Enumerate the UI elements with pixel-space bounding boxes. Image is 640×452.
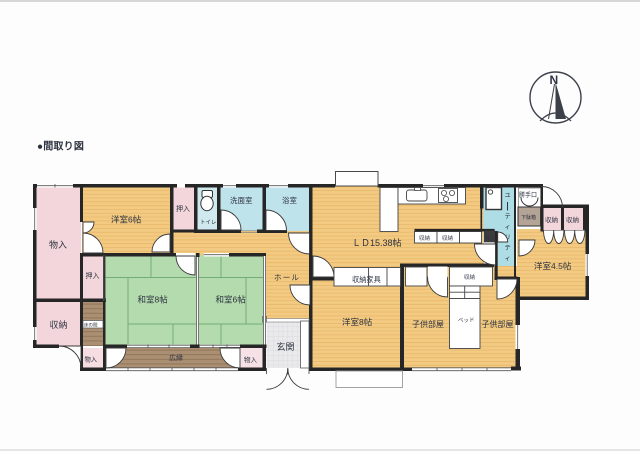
svg-text:和室6帖: 和室6帖 [216, 295, 247, 305]
svg-text:床の間: 床の間 [84, 322, 98, 329]
svg-text:子供部屋: 子供部屋 [412, 319, 444, 329]
svg-text:収納: 収納 [50, 319, 68, 330]
svg-text:押入: 押入 [176, 204, 190, 213]
svg-text:N: N [550, 73, 559, 87]
svg-text:物入: 物入 [485, 235, 495, 242]
svg-text:広縁: 広縁 [169, 353, 183, 362]
svg-text:浴室: 浴室 [282, 195, 297, 205]
svg-text:下駄箱: 下駄箱 [521, 214, 536, 221]
svg-text:ベッド: ベッド [458, 317, 475, 324]
svg-text:●間取り図: ●間取り図 [37, 141, 84, 153]
svg-text:洋室8帖: 洋室8帖 [342, 317, 373, 327]
svg-text:物入: 物入 [49, 239, 67, 250]
svg-text:玄関: 玄関 [277, 341, 295, 352]
svg-text:収納: 収納 [419, 234, 431, 242]
svg-text:トイレ: トイレ [200, 220, 217, 226]
svg-text:収納: 収納 [442, 234, 454, 242]
svg-text:収納家具: 収納家具 [352, 275, 381, 284]
svg-text:ＬＤ15.38帖: ＬＤ15.38帖 [352, 237, 402, 248]
svg-text:押入: 押入 [86, 271, 100, 280]
svg-text:勝手口: 勝手口 [519, 191, 537, 199]
svg-text:ホール: ホール [274, 273, 300, 282]
svg-text:収納: 収納 [566, 215, 579, 224]
svg-text:物入: 物入 [244, 355, 258, 364]
svg-text:洗面室: 洗面室 [230, 195, 253, 205]
svg-text:物入: 物入 [85, 355, 98, 364]
svg-text:和室8帖: 和室8帖 [138, 295, 169, 305]
svg-text:子供部屋: 子供部屋 [482, 319, 514, 329]
svg-text:収納: 収納 [545, 215, 558, 224]
svg-text:洋室4.5帖: 洋室4.5帖 [534, 261, 572, 271]
svg-text:収納: 収納 [464, 273, 476, 281]
svg-text:洋室6帖: 洋室6帖 [111, 215, 142, 225]
